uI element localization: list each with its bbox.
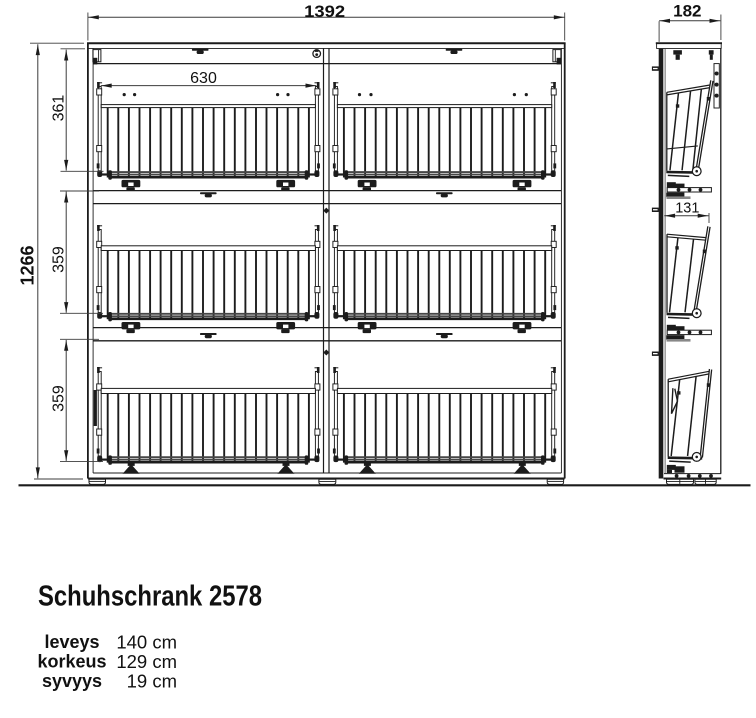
svg-text:1266: 1266 <box>18 245 38 285</box>
svg-text:140 cm: 140 cm <box>116 632 177 653</box>
svg-text:syvyys: syvyys <box>42 671 102 691</box>
svg-text:630: 630 <box>190 70 217 87</box>
svg-text:19 cm: 19 cm <box>127 671 177 692</box>
svg-text:Schuhschrank 2578: Schuhschrank 2578 <box>38 581 262 613</box>
svg-text:131: 131 <box>675 201 699 217</box>
svg-text:129 cm: 129 cm <box>116 651 177 672</box>
svg-text:359: 359 <box>51 246 68 273</box>
svg-text:korkeus: korkeus <box>37 652 106 672</box>
svg-text:leveys: leveys <box>44 632 99 652</box>
svg-text:361: 361 <box>51 95 68 122</box>
svg-text:359: 359 <box>51 385 68 412</box>
svg-text:182: 182 <box>673 2 701 21</box>
svg-text:1392: 1392 <box>304 2 345 21</box>
